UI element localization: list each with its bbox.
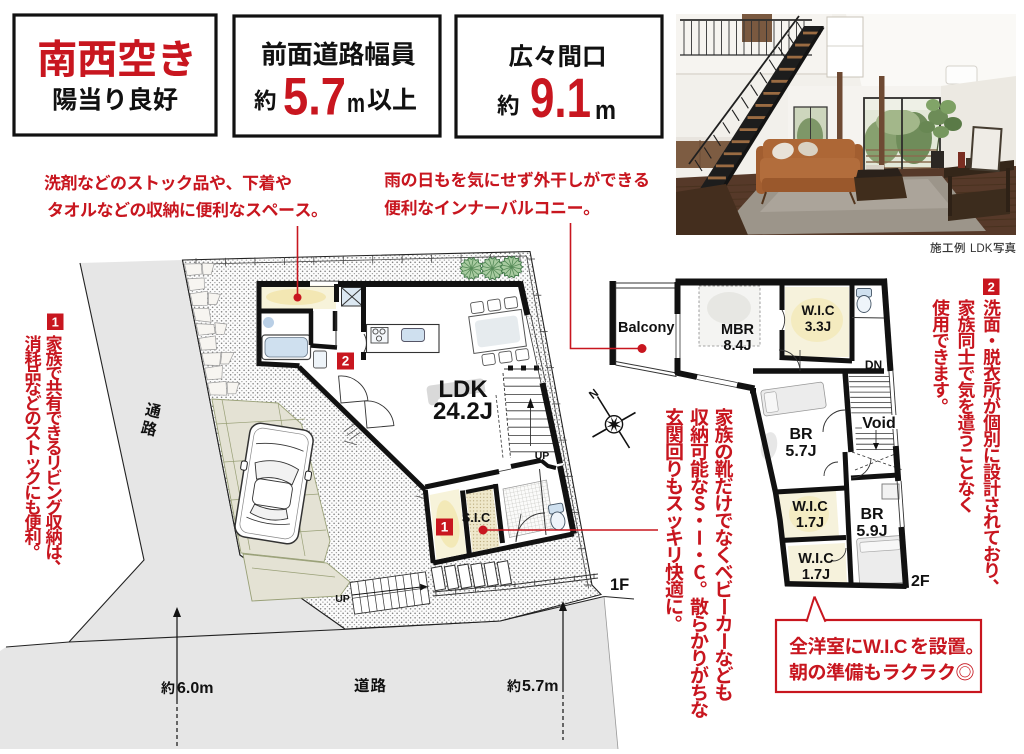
svg-text:W.I.C: W.I.C: [802, 303, 835, 318]
svg-text:W.I.C: W.I.C: [863, 637, 908, 658]
svg-text:2F: 2F: [911, 573, 930, 590]
svg-text:1.7J: 1.7J: [802, 567, 830, 583]
svg-text:UP: UP: [535, 450, 550, 462]
svg-text:BR: BR: [789, 426, 813, 443]
svg-text:5.7m: 5.7m: [522, 678, 558, 695]
svg-text:BR: BR: [860, 506, 884, 523]
svg-text:2: 2: [988, 280, 995, 295]
svg-text:UP: UP: [335, 593, 350, 605]
svg-text:2: 2: [342, 354, 350, 369]
svg-text:Balcony: Balcony: [618, 320, 674, 336]
svg-text:6.0m: 6.0m: [177, 680, 213, 697]
svg-text:1: 1: [441, 520, 449, 535]
svg-text:LDK: LDK: [970, 243, 993, 255]
svg-text:m: m: [347, 88, 365, 118]
svg-text:5.7: 5.7: [283, 68, 346, 127]
svg-text:MBR: MBR: [721, 322, 755, 338]
svg-text:5.9J: 5.9J: [856, 523, 887, 540]
svg-text:W.I.C: W.I.C: [792, 499, 828, 515]
svg-text:1: 1: [52, 315, 59, 330]
svg-text:S.I.C: S.I.C: [462, 510, 490, 525]
svg-text:3.3J: 3.3J: [805, 319, 831, 334]
svg-text:1F: 1F: [610, 576, 629, 594]
svg-text:W.I.C: W.I.C: [798, 551, 834, 567]
svg-text:24.2J: 24.2J: [433, 398, 493, 425]
svg-text:1.7J: 1.7J: [796, 515, 824, 531]
svg-text:Void: Void: [862, 415, 895, 432]
svg-text:DN: DN: [865, 358, 882, 372]
svg-text:9.1: 9.1: [530, 66, 591, 129]
svg-text:m: m: [595, 95, 616, 125]
svg-text:8.4J: 8.4J: [723, 338, 751, 354]
svg-text:5.7J: 5.7J: [785, 443, 816, 460]
